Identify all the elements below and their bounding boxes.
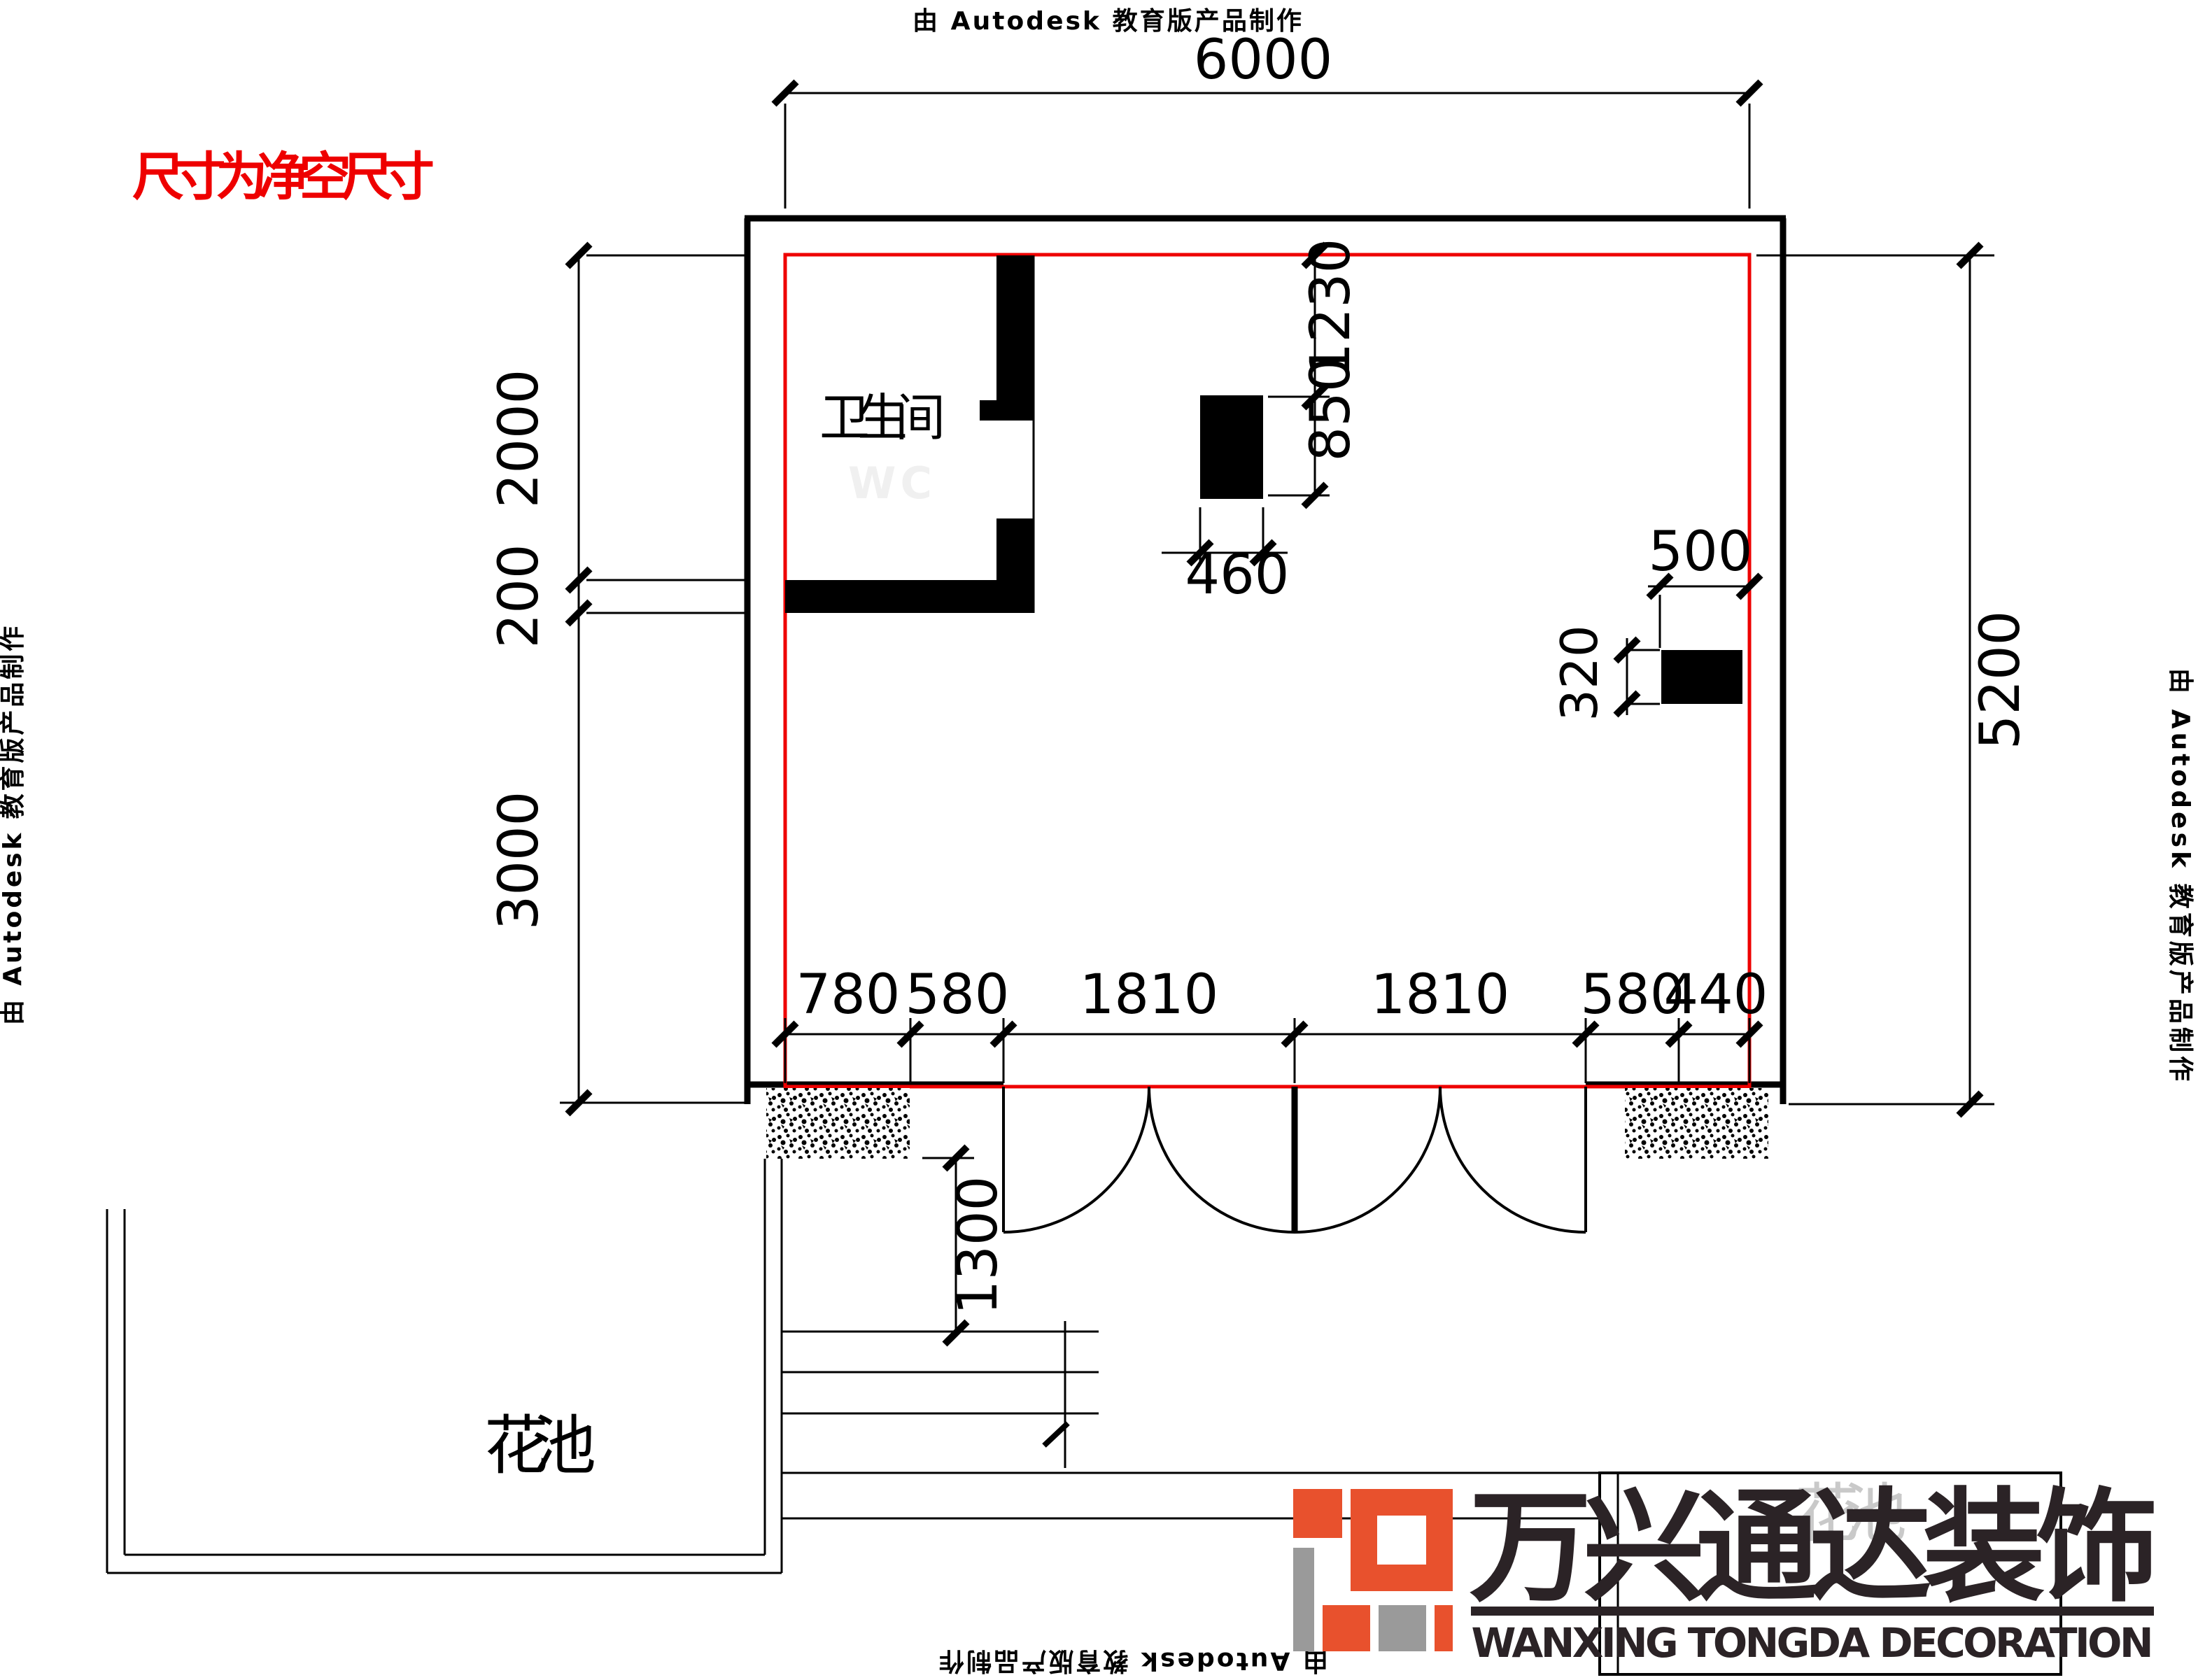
bathroom-label: 卫生间 [819,388,945,447]
dim-left-chain [560,244,747,1114]
bathroom-wc-label: WC [848,458,932,509]
dim-left-2000: 2000 [488,369,551,509]
dim-left-200: 200 [488,544,551,649]
flower-bed-outline [107,1159,782,1573]
dim-1300: 1300 [947,1176,1010,1315]
logo-mark [1293,1489,1453,1651]
watermark-left: 由 Autodesk 教育版产品制作 [0,626,27,1025]
dim-460: 460 [1185,544,1290,607]
watermark-top: 由 Autodesk 教育版产品制作 [913,7,1302,36]
entrance-hatched-piers [766,1088,1768,1159]
fixture-column [1200,395,1263,499]
dim-top-label: 6000 [1194,29,1333,92]
floor-plan-drawing: 6000 2000 200 3000 5200 1230 850 [0,0,2205,1680]
dim-bottom-1810b: 1810 [1371,963,1510,1026]
dim-right-label: 5200 [1969,611,2032,750]
watermark-right: 由 Autodesk 教育版产品制作 [2166,668,2195,1081]
dim-bottom-780: 780 [796,963,901,1026]
dim-bottom-580a: 580 [906,963,1010,1026]
dim-850: 850 [1299,358,1362,462]
floor-plan-page: 6000 2000 200 3000 5200 1230 850 [0,0,2205,1680]
watermark-bottom: 由 Autodesk 教育版产品制作 [939,1646,1328,1675]
clearance-note: 尺寸为净空尺寸 [132,147,435,207]
dim-500: 500 [1649,521,1753,584]
dim-320: 320 [1550,625,1609,721]
logo-name-en: WANXING TONGDA DECORATION [1472,1619,2154,1667]
wall-block [1661,650,1742,704]
dim-bottom-chain [774,1018,1761,1083]
dim-right-5200 [1756,244,1994,1115]
logo-rule [1471,1607,2154,1616]
company-logo: 万兴通达装饰 WANXING TONGDA DECORATION [1293,1477,2159,1667]
entrance-doors [1003,1087,1586,1232]
flower-bed-label: 花池 [484,1409,596,1483]
dim-1230: 1230 [1299,239,1362,378]
dim-left-3000: 3000 [488,791,551,931]
logo-name-cn: 万兴通达装饰 [1470,1477,2159,1619]
dim-bottom-440: 440 [1664,963,1768,1026]
dim-top-6000 [774,82,1761,209]
dim-bottom-1810a: 1810 [1080,963,1219,1026]
